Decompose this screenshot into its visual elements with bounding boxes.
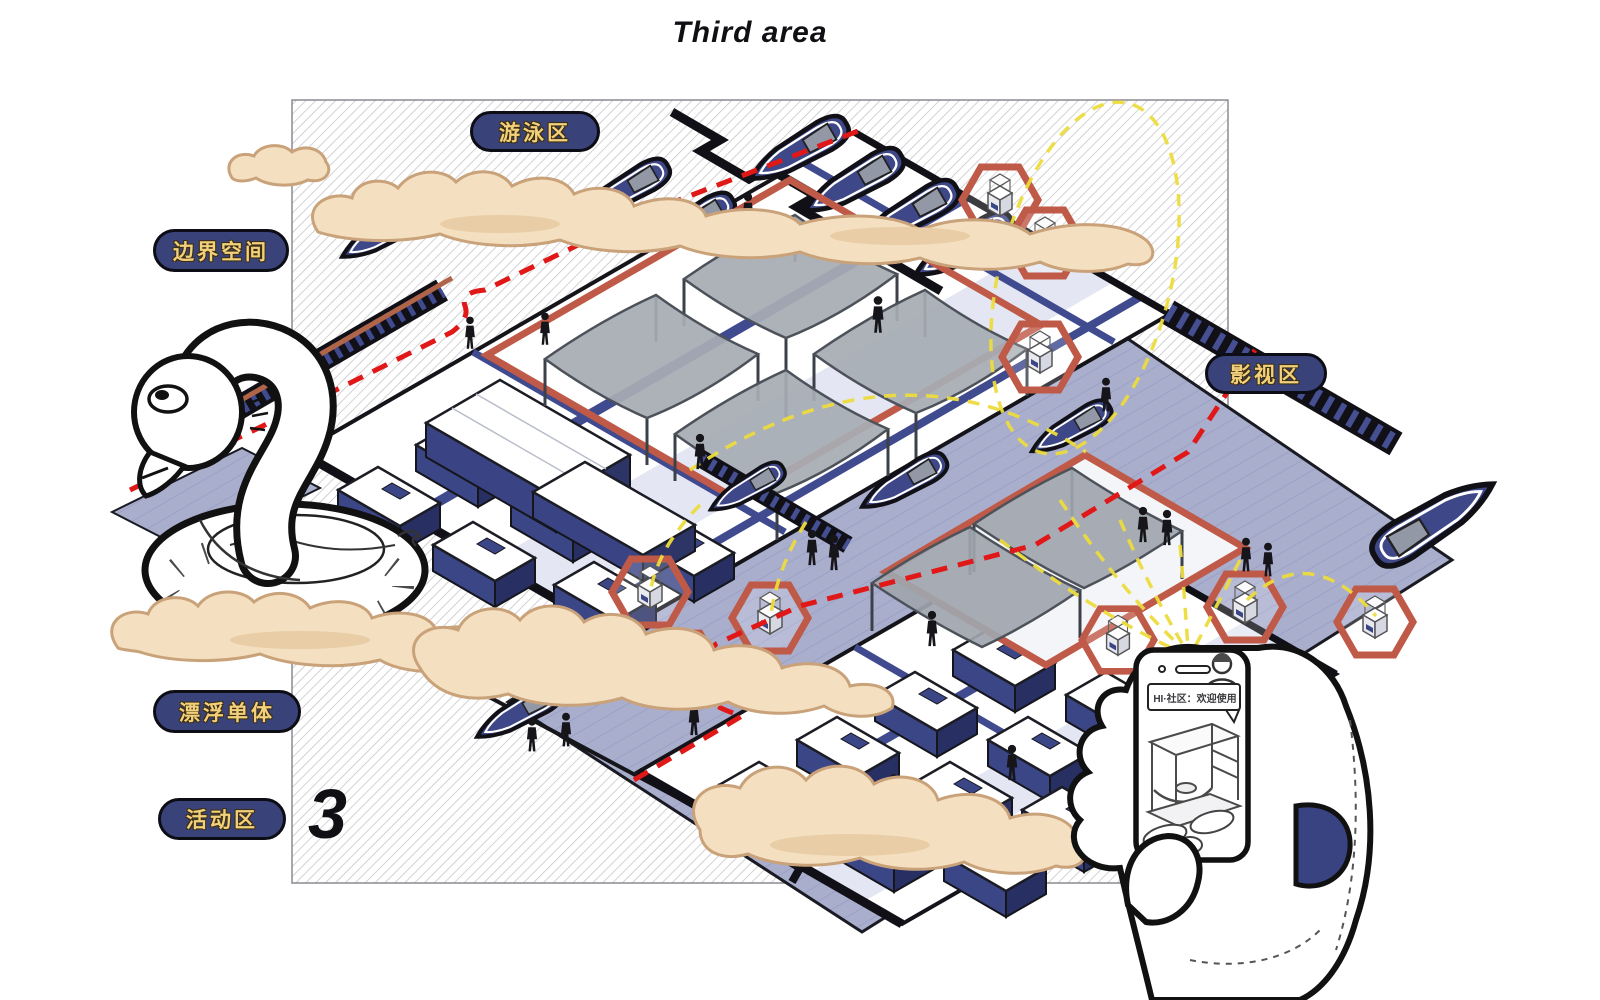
zone-label-film: 影视区 [1205,353,1327,394]
speech-bubble-text: HI·社区：欢迎使用 [1151,690,1239,705]
page-title: Third area [600,16,900,50]
zone-label-floating-unit: 漂浮单体 [153,690,301,733]
phone [1136,650,1248,860]
illustration-stage: Third area 游泳区 边界空间 影视区 漂浮单体 活动区 3 HI·社区… [0,0,1600,1000]
sleeve [1296,805,1350,886]
zone-label-swimming: 游泳区 [470,111,600,152]
illustration-canvas [0,0,1600,1000]
camera-icon [1159,666,1165,672]
zone-label-activity: 活动区 [158,798,286,840]
plate-number: 3 [308,774,347,854]
speaker-icon [1176,666,1210,673]
zone-label-boundary-space: 边界空间 [153,229,289,272]
